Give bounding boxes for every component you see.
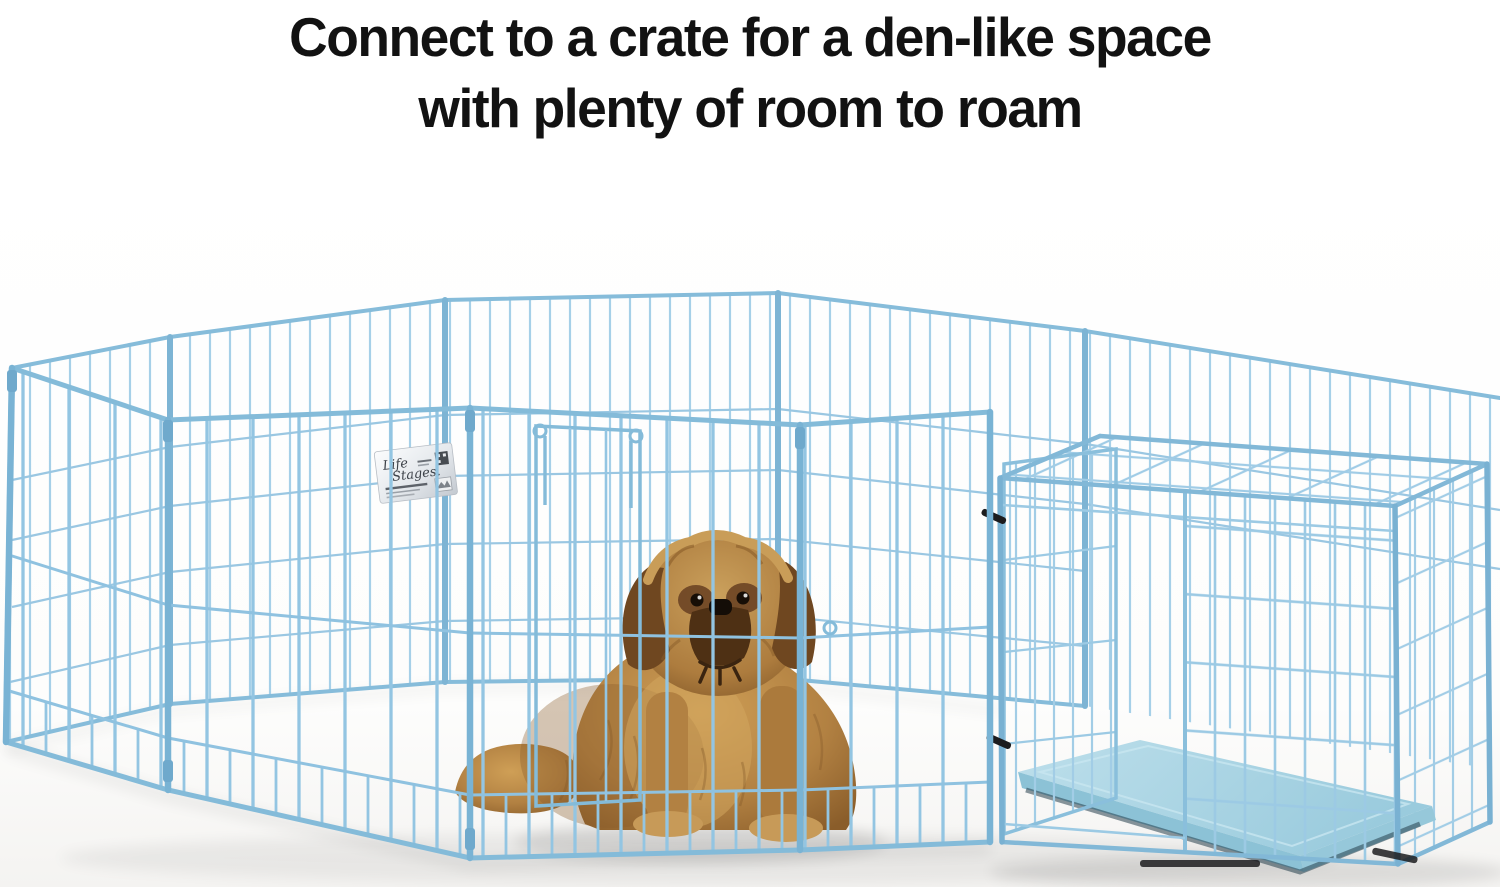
playpen-front-panels [6,368,990,858]
dog-crate [980,436,1490,872]
headline-line-1: Connect to a crate for a den-like space [23,2,1478,73]
headline: Connect to a crate for a den-like space … [23,0,1478,144]
headline-line-2: with plenty of room to roam [23,73,1478,144]
marketing-image: Connect to a crate for a den-like space … [0,0,1500,887]
